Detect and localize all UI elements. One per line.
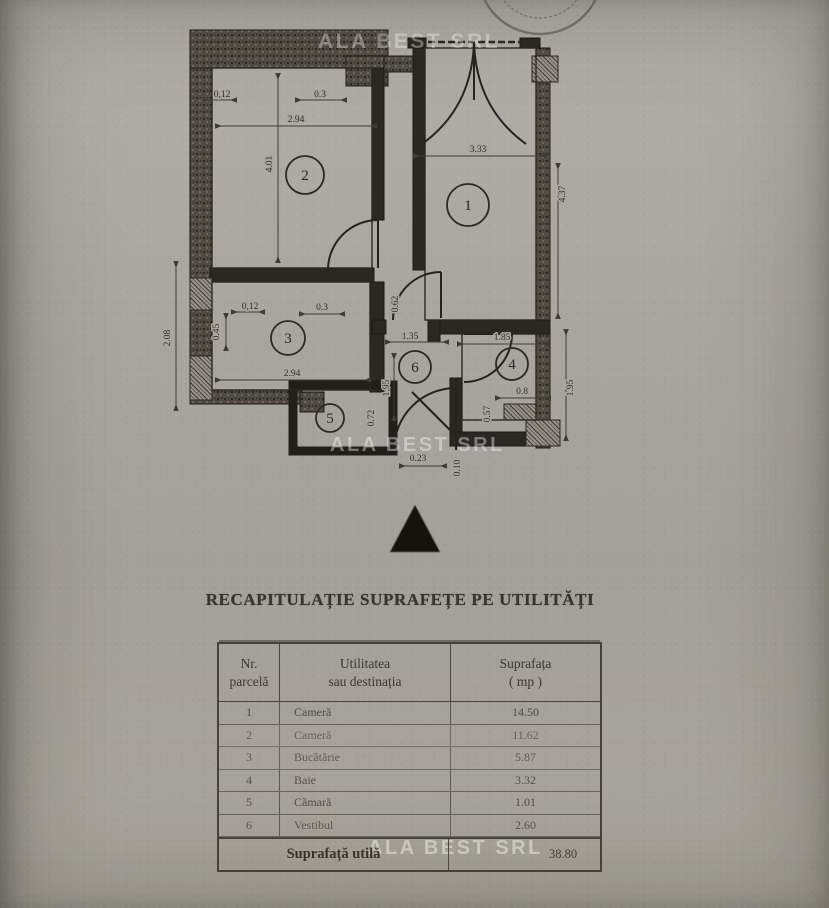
cell-name: Vestibul (279, 815, 450, 837)
dim-entry-023: 0.23 (410, 454, 427, 464)
cell-area: 5.87 (450, 747, 600, 769)
dim-right-195: 1.95 (566, 379, 576, 396)
footer-total-value: 38.80 (448, 839, 600, 870)
footer-label: Suprafață utilă (219, 839, 448, 870)
dim-hall-width: 1.35 (402, 332, 419, 342)
table-row: 6 Vestibul 2.60 (219, 815, 600, 838)
dim-kitchen-width: 2.94 (284, 369, 301, 379)
room-1-label: 1 (464, 198, 472, 214)
table-row: 2 Cameră 11.62 (219, 725, 600, 748)
header-utility-line1: Utilitatea (340, 655, 390, 673)
table-footer-row: Suprafață utilă 38.80 (219, 837, 600, 870)
dim-kitchen-03: 0.3 (316, 303, 328, 313)
north-arrow-icon (390, 505, 440, 552)
dim-left-height: 2.08 (163, 329, 173, 346)
room-5-label: 5 (326, 411, 334, 427)
room-3-label: 3 (284, 331, 292, 347)
scanned-document-page: · A · (0, 0, 829, 908)
dim-bath-057: 0.57 (483, 405, 493, 422)
dim-duct-062: 0.62 (391, 295, 401, 312)
dim-room1-height: 4.37 (558, 185, 568, 202)
dim-kitchen-012: 0,12 (242, 302, 259, 312)
dim-top-012: 0,12 (214, 90, 231, 100)
cell-area: 2.60 (450, 815, 600, 837)
room-4-label: 4 (508, 357, 516, 373)
floor-plan: 0,12 0.3 2.94 4.01 3.33 4.37 2.08 0,12 0… (160, 12, 605, 487)
table-header-row: Nr. parcelă Utilitatea sau destinația Su… (219, 644, 600, 702)
cell-nr: 6 (219, 815, 279, 837)
header-area-line2: ( mp ) (509, 673, 542, 691)
dim-kitchen-045: 0.45 (212, 323, 222, 340)
cell-area: 1.01 (450, 792, 600, 814)
cell-area: 3.32 (450, 770, 600, 792)
table-row: 1 Cameră 14.50 (219, 702, 600, 725)
page-title: RECAPITULAȚIE SUPRAFEȚE PE UTILITĂȚI (120, 590, 680, 610)
dim-room2-height: 4.01 (265, 155, 275, 172)
header-nr-line2: parcelă (230, 673, 269, 691)
dim-hall-height: 1.95 (382, 379, 392, 396)
header-area: Suprafața ( mp ) (450, 644, 600, 701)
dim-bath-08: 0.8 (516, 387, 528, 397)
cell-name: Cameră (279, 702, 450, 724)
cell-nr: 5 (219, 792, 279, 814)
header-utility: Utilitatea sau destinația (279, 644, 450, 701)
header-area-line1: Suprafața (500, 655, 552, 673)
cell-nr: 4 (219, 770, 279, 792)
cell-name: Cameră (279, 725, 450, 747)
cell-area: 11.62 (450, 725, 600, 747)
dim-pantry-072: 0.72 (367, 409, 377, 426)
dim-room1-width: 3.33 (470, 145, 487, 155)
header-nr-line1: Nr. (241, 655, 258, 673)
dim-top-03: 0.3 (314, 90, 326, 100)
cell-nr: 1 (219, 702, 279, 724)
table-row: 4 Baie 3.32 (219, 770, 600, 793)
cell-name: Bucătărie (279, 747, 450, 769)
cell-area: 14.50 (450, 702, 600, 724)
dim-bath-width: 1.85 (494, 333, 511, 343)
header-utility-line2: sau destinația (328, 673, 401, 691)
room-6-label: 6 (411, 360, 419, 376)
cell-nr: 2 (219, 725, 279, 747)
table-row: 3 Bucătărie 5.87 (219, 747, 600, 770)
plan-walls (190, 30, 560, 451)
header-nr: Nr. parcelă (219, 644, 279, 701)
dim-room2-width: 2.94 (288, 115, 305, 125)
table-row: 5 Cămară 1.01 (219, 792, 600, 815)
cell-name: Baie (279, 770, 450, 792)
dim-entry-010: 0.10 (453, 459, 463, 476)
cell-name: Cămară (279, 792, 450, 814)
cell-nr: 3 (219, 747, 279, 769)
areas-table: Nr. parcelă Utilitatea sau destinația Su… (217, 642, 602, 872)
room-2-label: 2 (301, 168, 309, 184)
